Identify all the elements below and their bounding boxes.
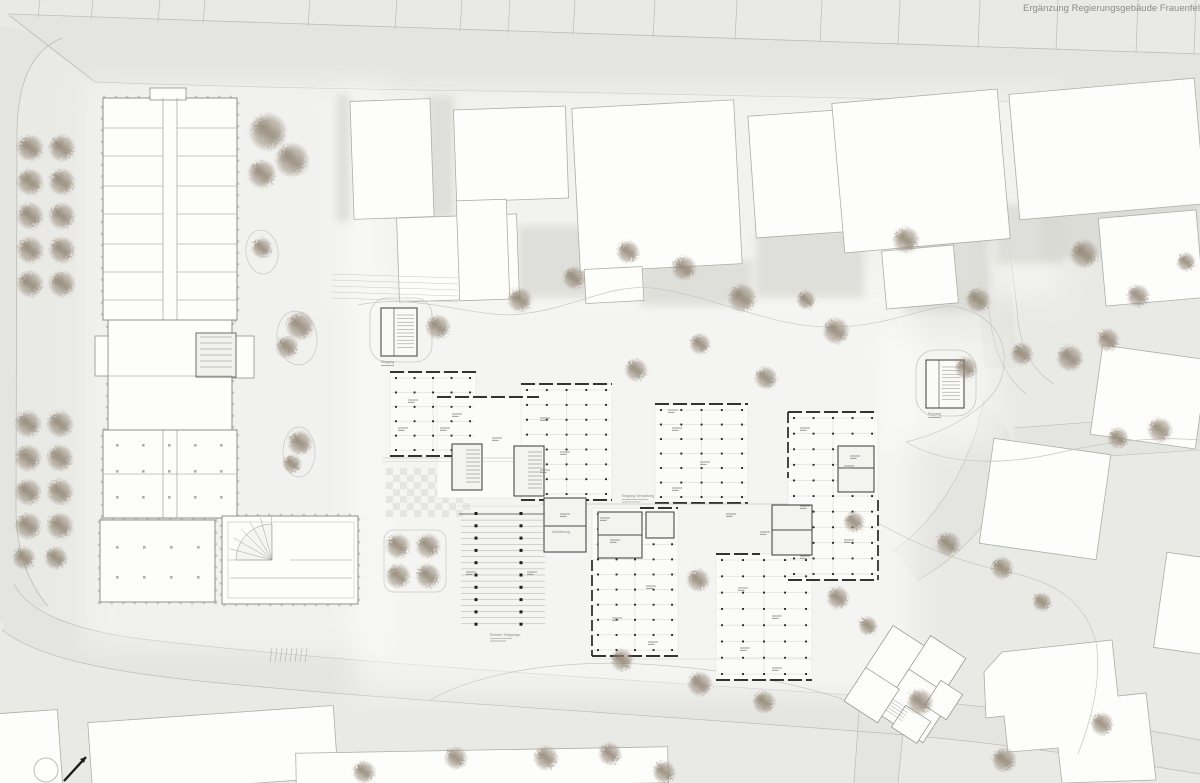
tree	[906, 688, 934, 716]
tree	[610, 648, 634, 672]
context-building	[882, 245, 959, 309]
tree	[727, 283, 757, 313]
tree	[1147, 417, 1173, 443]
tree	[415, 563, 441, 589]
tree	[1056, 344, 1084, 372]
tree	[562, 266, 586, 290]
tree	[46, 512, 74, 540]
tree	[533, 745, 559, 771]
context-building	[350, 99, 434, 220]
tree	[507, 287, 533, 313]
tree	[826, 586, 850, 610]
tree	[287, 430, 313, 456]
tree	[12, 546, 36, 570]
delivery-label: Anlieferung	[552, 530, 570, 534]
tree	[425, 314, 451, 340]
tree	[48, 134, 76, 162]
tree	[1126, 284, 1150, 308]
tree	[652, 760, 676, 783]
sheet-title: Ergänzung Regierungsgebäude Frauenfeld	[1023, 3, 1200, 14]
tree	[14, 444, 42, 472]
tree	[16, 270, 44, 298]
tree	[352, 760, 376, 783]
context-building	[456, 199, 509, 301]
tree	[251, 237, 273, 259]
context-building	[1090, 345, 1200, 449]
context-building	[572, 100, 742, 272]
context-building	[832, 89, 1010, 253]
tree	[990, 556, 1014, 580]
tree	[14, 478, 42, 506]
tree	[46, 478, 74, 506]
tree	[16, 236, 44, 264]
tree	[822, 317, 850, 345]
tree	[1090, 712, 1114, 736]
tree	[686, 568, 710, 592]
tree	[275, 335, 299, 359]
tree	[1176, 252, 1196, 272]
tree	[671, 255, 697, 281]
context-building	[979, 438, 1111, 559]
tree	[44, 546, 68, 570]
tree	[965, 287, 991, 313]
tree	[624, 358, 648, 382]
context-building	[453, 106, 568, 202]
tree	[247, 159, 277, 189]
site-plan-drawing: EingangEingangAnlieferungEingang Verwalt…	[0, 0, 1200, 783]
tree	[858, 616, 878, 636]
tree	[598, 742, 622, 766]
tree	[689, 333, 711, 355]
tree	[48, 168, 76, 196]
entrance-pavilion-west	[381, 308, 417, 356]
garage-label: Einfahrt Tiefgarage	[490, 633, 520, 637]
tree	[616, 240, 640, 264]
tree	[754, 366, 778, 390]
context-building	[584, 267, 644, 304]
tree	[385, 563, 411, 589]
tree	[46, 444, 74, 472]
context-building	[1009, 78, 1200, 220]
tree	[16, 168, 44, 196]
tree	[1032, 592, 1052, 612]
tree	[48, 270, 76, 298]
tree	[1010, 342, 1034, 366]
tree	[752, 690, 776, 714]
tree	[274, 142, 310, 178]
tree	[385, 533, 411, 559]
tree	[16, 202, 44, 230]
tree	[46, 410, 74, 438]
tree	[1069, 239, 1099, 269]
tree	[1107, 427, 1129, 449]
tree	[687, 671, 713, 697]
tree	[48, 202, 76, 230]
tree	[892, 226, 920, 254]
tree	[1096, 328, 1120, 352]
tree	[444, 746, 468, 770]
tree	[843, 511, 865, 533]
tree	[48, 236, 76, 264]
tree	[935, 531, 961, 557]
entrance-east-label: Eingang	[928, 412, 941, 416]
tree	[14, 410, 42, 438]
entrance-west-label: Eingang	[381, 360, 394, 364]
site-plan: EingangEingangAnlieferungEingang Verwalt…	[0, 0, 1200, 783]
admin-entrance-label: Eingang Verwaltung	[622, 494, 654, 498]
tree	[991, 747, 1017, 773]
tree	[415, 533, 441, 559]
tree	[796, 290, 816, 310]
tree	[16, 134, 44, 162]
tree	[14, 512, 42, 540]
tree	[954, 356, 978, 380]
tree	[282, 454, 302, 474]
